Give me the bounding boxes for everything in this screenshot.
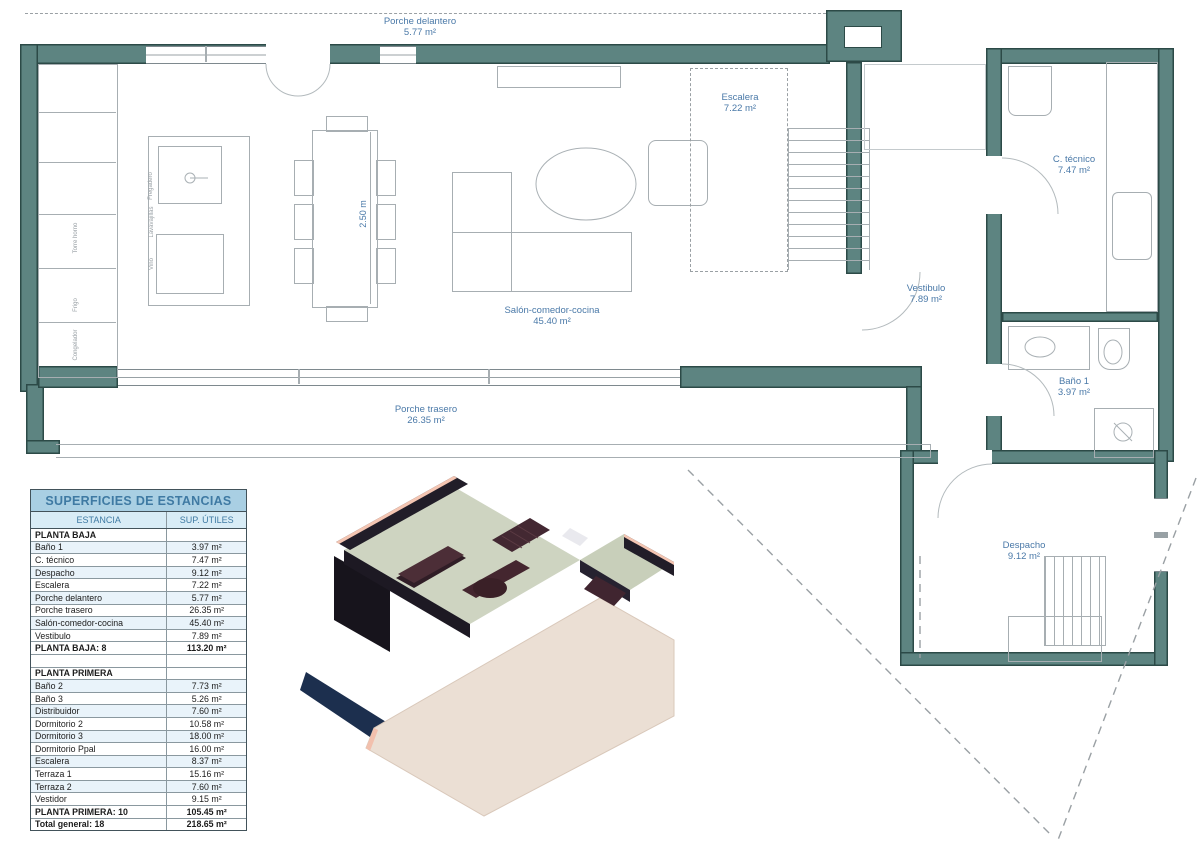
- dimension-label: 2.50 m: [358, 184, 370, 244]
- table-cell-estancia: Porche delantero: [31, 592, 166, 604]
- room-label-despacho: Despacho 9.12 m²: [974, 540, 1074, 563]
- table-cell-estancia: Escalera: [31, 579, 166, 591]
- render-wing-floor: [580, 534, 674, 590]
- table-row: Baño 27.73 m²: [31, 680, 246, 693]
- staircase-treads: [788, 128, 870, 270]
- boiler-unit: [1008, 66, 1052, 116]
- table-cell-estancia: Salón-comedor-cocina: [31, 617, 166, 629]
- door-swing-arc: [266, 64, 298, 96]
- cabinet-divider: [38, 162, 116, 163]
- render-wall-divider: [580, 560, 630, 602]
- island-sink: [158, 146, 222, 204]
- appliance-label-lavavajillas: Lavavajillas: [149, 195, 157, 249]
- render-wing-furniture: [584, 576, 626, 606]
- render-wall-north: [336, 476, 468, 550]
- chair: [294, 204, 314, 240]
- cabinet-divider: [38, 112, 116, 113]
- table-row: Escalera8.37 m²: [31, 756, 246, 769]
- table-cell-estancia: Porche trasero: [31, 605, 166, 617]
- table-cell-superficie: [166, 655, 246, 667]
- toilet: [1098, 328, 1130, 370]
- render-coral-edge: [624, 534, 674, 565]
- room-area: 7.22 m²: [698, 103, 782, 114]
- render-kitchen-block: [334, 556, 390, 652]
- porch-front-dashed-line: [25, 13, 831, 14]
- table-row: Total general: 18218.65 m²: [31, 819, 246, 831]
- table-cell-superficie: 9.12 m²: [166, 567, 246, 579]
- wall-wing-right: [1158, 48, 1174, 462]
- table-cell-estancia: PLANTA BAJA: [31, 529, 166, 541]
- table-cell-superficie: 8.37 m²: [166, 756, 246, 768]
- table-cell-estancia: Total general: 18: [31, 819, 166, 831]
- wall-porch-corner-h: [26, 440, 60, 454]
- table-cell-superficie: 45.40 m²: [166, 617, 246, 629]
- table-cell-superficie: 26.35 m²: [166, 605, 246, 617]
- wall-bottom-right: [680, 366, 922, 388]
- table-cell-superficie: 3.97 m²: [166, 542, 246, 554]
- table-cell-estancia: Dormitorio 2: [31, 718, 166, 730]
- table-cell-estancia: Escalera: [31, 756, 166, 768]
- render-stair-step: [518, 526, 538, 538]
- render-stair-step: [510, 531, 530, 543]
- wall-office-left: [900, 450, 914, 666]
- dimension-text: 2.50 m: [358, 184, 369, 244]
- areas-table-rows: PLANTA BAJABaño 13.97 m²C. técnico7.47 m…: [31, 529, 246, 830]
- wall-left: [20, 44, 38, 392]
- room-name: Escalera: [698, 92, 782, 103]
- room-area: 9.12 m²: [974, 551, 1074, 562]
- room-label-escalera: Escalera 7.22 m²: [698, 92, 782, 115]
- table-cell-superficie: 7.60 m²: [166, 705, 246, 717]
- dimension-line: [370, 132, 371, 304]
- floor-plan-sheet: Porche delantero 5.77 m² Escalera 7.22 m…: [0, 0, 1200, 862]
- table-cell-superficie: 105.45 m²: [166, 806, 246, 818]
- table-cell-estancia: Baño 2: [31, 680, 166, 692]
- table-row: Baño 13.97 m²: [31, 542, 246, 555]
- table-cell-superficie: 7.60 m²: [166, 781, 246, 793]
- render-table-oval: [473, 578, 507, 598]
- table-row: Dormitorio 318.00 m²: [31, 731, 246, 744]
- table-cell-superficie: 218.65 m²: [166, 819, 246, 831]
- window-office: [1154, 498, 1168, 572]
- porch-slab-edge: [56, 457, 930, 458]
- tv-console: [497, 66, 621, 88]
- entry-patio-outline: [864, 64, 986, 150]
- door-swing-arc: [938, 464, 992, 518]
- table-cell-estancia: Dormitorio 3: [31, 731, 166, 743]
- render-shadow: [300, 672, 428, 772]
- table-row: Escalera7.22 m²: [31, 579, 246, 592]
- table-cell-estancia: Terraza 2: [31, 781, 166, 793]
- table-cell-estancia: Terraza 1: [31, 768, 166, 780]
- table-row: C. técnico7.47 m²: [31, 554, 246, 567]
- table-cell-superficie: 18.00 m²: [166, 731, 246, 743]
- room-label-bano1: Baño 1 3.97 m²: [1028, 376, 1120, 399]
- table-cell-estancia: Baño 1: [31, 542, 166, 554]
- render-coral-edge: [366, 728, 378, 751]
- table-row: Dormitorio 210.58 m²: [31, 718, 246, 731]
- room-label-c-tecnico: C. técnico 7.47 m²: [1028, 154, 1120, 177]
- window-mullion: [205, 46, 207, 62]
- room-area: 5.77 m²: [340, 27, 500, 38]
- table-row: PLANTA BAJA: [31, 529, 246, 542]
- porch-slab-edge: [930, 444, 931, 458]
- table-cell-estancia: Baño 3: [31, 693, 166, 705]
- appliance-label-congelador: Congelador: [73, 320, 81, 370]
- table-cell-superficie: 7.47 m²: [166, 554, 246, 566]
- table-cell-superficie: 16.00 m²: [166, 743, 246, 755]
- table-row: [31, 655, 246, 668]
- render-3d: [278, 476, 676, 820]
- table-cell-estancia: PLANTA BAJA: 8: [31, 642, 166, 654]
- chair: [376, 204, 396, 240]
- render-terrace-slab: [366, 598, 674, 816]
- chair: [326, 116, 368, 132]
- render-island-top: [398, 546, 464, 583]
- table-row: Porche trasero26.35 m²: [31, 605, 246, 618]
- table-cell-estancia: Vestibulo: [31, 630, 166, 642]
- table-cell-superficie: 15.16 m²: [166, 768, 246, 780]
- table-cell-superficie: [166, 529, 246, 541]
- wall-top: [20, 44, 830, 64]
- window-top-2: [380, 46, 416, 64]
- office-door-opening: [938, 450, 992, 464]
- tech-room-door-opening: [986, 156, 1002, 214]
- table-cell-superficie: 5.26 m²: [166, 693, 246, 705]
- table-row: Porche delantero5.77 m²: [31, 592, 246, 605]
- table-cell-superficie: 7.22 m²: [166, 579, 246, 591]
- bath-door-opening: [986, 364, 1002, 416]
- chimney-flue: [844, 26, 882, 48]
- window-mullion: [488, 369, 490, 384]
- table-row: PLANTA BAJA: 8113.20 m²: [31, 642, 246, 655]
- door-swing-arc: [298, 64, 330, 96]
- render-wall-south: [344, 550, 470, 638]
- table-row: PLANTA PRIMERA: [31, 668, 246, 681]
- room-label-vestibulo: Vestibulo 7.89 m²: [884, 283, 968, 306]
- table-row: Distribuidor7.60 m²: [31, 705, 246, 718]
- chair: [376, 248, 396, 284]
- render-stair-step: [502, 536, 522, 548]
- render-wall-wing: [624, 534, 674, 576]
- table-row: Vestidor9.15 m²: [31, 793, 246, 806]
- render-sofa: [462, 560, 530, 598]
- appliance-label-frigo: Frigo: [73, 292, 81, 318]
- table-row: Terraza 115.16 m²: [31, 768, 246, 781]
- room-name: Despacho: [974, 540, 1074, 551]
- table-cell-superficie: 113.20 m²: [166, 642, 246, 654]
- table-row: Salón-comedor-cocina45.40 m²: [31, 617, 246, 630]
- table-cell-superficie: 7.89 m²: [166, 630, 246, 642]
- chair: [326, 306, 368, 322]
- render-interior-floor: [344, 488, 580, 624]
- table-cell-estancia: Despacho: [31, 567, 166, 579]
- laundry-sink: [1112, 192, 1152, 260]
- table-cell-superficie: 5.77 m²: [166, 592, 246, 604]
- table-cell-superficie: 7.73 m²: [166, 680, 246, 692]
- areas-table-title: SUPERFICIES DE ESTANCIAS: [31, 490, 246, 512]
- bath-vanity: [1008, 326, 1090, 370]
- room-name: Porche trasero: [346, 404, 506, 415]
- table-row: Baño 35.26 m²: [31, 693, 246, 706]
- window-band-rear: [118, 369, 680, 386]
- areas-table-header: ESTANCIA SUP. ÚTILES: [31, 512, 246, 529]
- table-row: Dormitorio Ppal16.00 m²: [31, 743, 246, 756]
- table-cell-superficie: 10.58 m²: [166, 718, 246, 730]
- room-label-porche-trasero: Porche trasero 26.35 m²: [346, 404, 506, 427]
- room-label-salon: Salón-comedor-cocina 45.40 m²: [468, 305, 636, 328]
- areas-table: SUPERFICIES DE ESTANCIAS ESTANCIA SUP. Ú…: [30, 489, 247, 831]
- room-name: Porche delantero: [340, 16, 500, 27]
- render-coral-edge: [336, 476, 457, 544]
- table-cell-estancia: PLANTA PRIMERA: [31, 668, 166, 680]
- porch-slab-edge: [56, 444, 930, 445]
- render-island: [396, 548, 466, 588]
- wall-partition-bath: [1002, 312, 1158, 322]
- tech-counter: [1106, 62, 1158, 312]
- table-cell-estancia: PLANTA PRIMERA: 10: [31, 806, 166, 818]
- room-area: 3.97 m²: [1028, 387, 1120, 398]
- table-cell-estancia: [31, 655, 166, 667]
- island-cooktop: [156, 234, 224, 294]
- render-fixture-white: [562, 528, 588, 546]
- chair: [294, 160, 314, 196]
- appliance-label-torre-horno: Torre horno: [73, 213, 81, 263]
- appliance-label-vino: Vino: [149, 251, 157, 277]
- room-name: Vestibulo: [884, 283, 968, 294]
- room-area: 26.35 m²: [346, 415, 506, 426]
- room-area: 7.47 m²: [1028, 165, 1120, 176]
- room-area: 7.89 m²: [884, 294, 968, 305]
- table-cell-superficie: [166, 668, 246, 680]
- office-desk: [1008, 616, 1102, 662]
- table-cell-estancia: C. técnico: [31, 554, 166, 566]
- table-cell-estancia: Vestidor: [31, 793, 166, 805]
- column-header-estancia: ESTANCIA: [31, 512, 166, 528]
- table-row: Terraza 27.60 m²: [31, 781, 246, 794]
- room-name: C. técnico: [1028, 154, 1120, 165]
- room-name: Salón-comedor-cocina: [468, 305, 636, 316]
- chair: [376, 160, 396, 196]
- cabinet-divider: [38, 268, 116, 269]
- table-row: PLANTA PRIMERA: 10105.45 m²: [31, 806, 246, 819]
- shower: [1094, 408, 1154, 458]
- table-cell-estancia: Distribuidor: [31, 705, 166, 717]
- column-header-sup-utiles: SUP. ÚTILES: [166, 512, 246, 528]
- rug-oval: [536, 148, 636, 220]
- window-mullion: [298, 369, 300, 384]
- room-area: 45.40 m²: [468, 316, 636, 327]
- entry-door-opening: [266, 44, 330, 64]
- sofa-seat: [452, 232, 632, 292]
- table-cell-estancia: Dormitorio Ppal: [31, 743, 166, 755]
- chair: [294, 248, 314, 284]
- table-cell-superficie: 9.15 m²: [166, 793, 246, 805]
- table-row: Vestibulo7.89 m²: [31, 630, 246, 643]
- room-name: Baño 1: [1028, 376, 1120, 387]
- room-label-porche-delantero: Porche delantero 5.77 m²: [340, 16, 500, 39]
- render-stairs: [492, 518, 550, 552]
- table-row: Despacho9.12 m²: [31, 567, 246, 580]
